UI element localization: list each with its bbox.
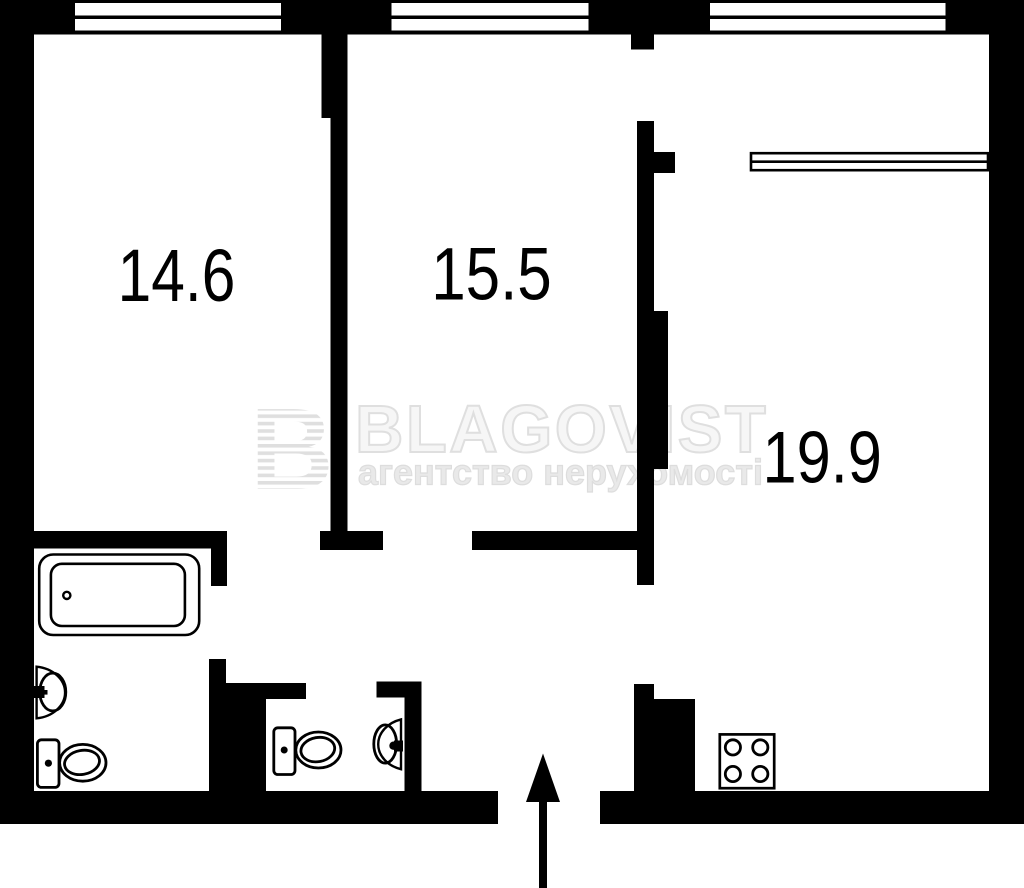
svg-text:14.6: 14.6 bbox=[118, 235, 236, 317]
svg-text:B: B bbox=[250, 384, 334, 514]
svg-text:19.9: 19.9 bbox=[763, 418, 882, 499]
svg-text:15.5: 15.5 bbox=[431, 233, 552, 315]
svg-text:агентство нерухомості: агентство нерухомості bbox=[358, 452, 763, 493]
